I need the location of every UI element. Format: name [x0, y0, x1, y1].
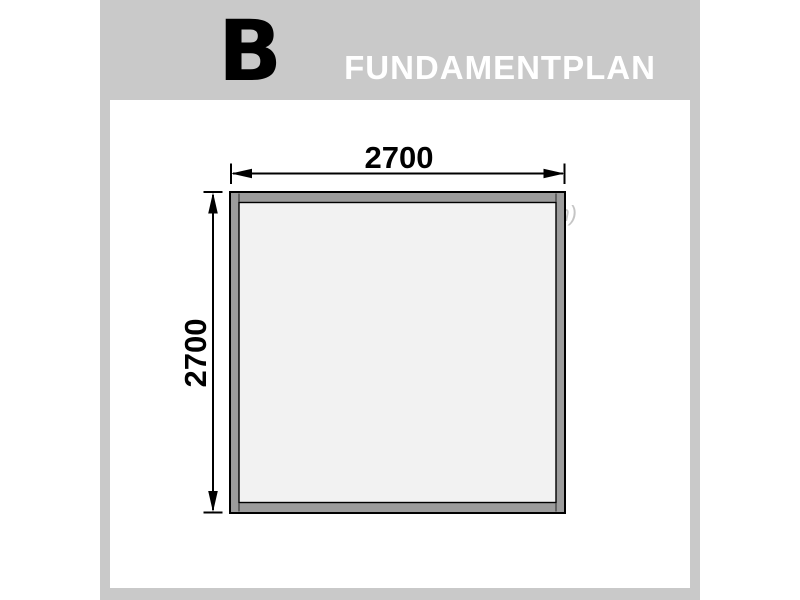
left-dimension: 2700	[178, 192, 223, 513]
top-dimension: 2700	[231, 140, 565, 184]
arrow-left-icon	[231, 169, 252, 179]
foundation-interior	[239, 203, 556, 503]
left-dimension-label: 2700	[178, 319, 213, 388]
arrow-up-icon	[208, 193, 218, 214]
foundation-plan-drawing: 2700 2700	[0, 0, 800, 600]
arrow-right-icon	[544, 169, 565, 179]
arrow-down-icon	[208, 491, 218, 512]
top-dimension-label: 2700	[365, 140, 434, 175]
page-canvas: B FUNDAMENTPLAN (in mm) 2700	[0, 0, 800, 600]
